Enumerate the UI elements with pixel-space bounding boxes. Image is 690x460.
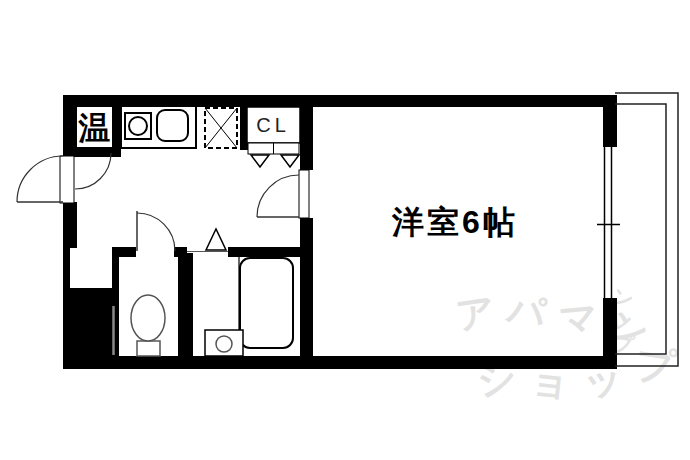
main-room-label: 洋室6帖	[391, 204, 518, 240]
wall-left-middle	[63, 202, 77, 248]
wall-right-pillar	[603, 107, 617, 147]
floorplan-drawing: 温 CL 洋室6帖	[0, 0, 690, 460]
wall-hall-bottom-3	[228, 247, 313, 257]
wall-right-below-window	[603, 298, 617, 356]
stove-burner-icon	[129, 117, 147, 135]
wall-mass-bottom-left	[63, 288, 119, 356]
washbasin-bowl-icon	[216, 336, 232, 352]
bathtub-icon	[240, 258, 293, 348]
balcony-outer-rail	[615, 93, 678, 366]
entrance-door-swing-arc-outside	[17, 156, 63, 202]
wall-heater-niche-right	[113, 107, 121, 157]
toilet-door-swing-arc	[137, 213, 175, 251]
entrance-door-swing-arc-inside	[75, 153, 111, 189]
wall-left-thin	[63, 248, 70, 290]
closet-folding-door-triangle-left	[251, 155, 269, 167]
closet-label: CL	[256, 114, 290, 136]
main-room-door-swing-arc	[257, 175, 299, 217]
wall-bottom	[63, 356, 617, 369]
closet-folding-door-triangle-right	[281, 155, 299, 167]
wall-hall-room-upper	[300, 107, 313, 170]
floorplan-image: ア パ マ ン ン レ プ シ ョ ッ プ	[0, 0, 690, 460]
main-room-door-leaf	[299, 170, 309, 218]
toilet-tank	[137, 341, 160, 356]
entrance-door-leaf	[60, 156, 74, 203]
water-heater-label: 温	[78, 110, 111, 146]
kitchen-sink-icon	[157, 110, 188, 141]
wall-hall-room-lower	[300, 218, 313, 356]
bathroom-door-triangle	[206, 229, 226, 250]
wall-left-upper	[63, 95, 77, 157]
wall-toilet-bath	[178, 253, 193, 356]
toilet-bowl-icon	[131, 295, 165, 341]
balcony-inner-rail	[615, 104, 666, 354]
